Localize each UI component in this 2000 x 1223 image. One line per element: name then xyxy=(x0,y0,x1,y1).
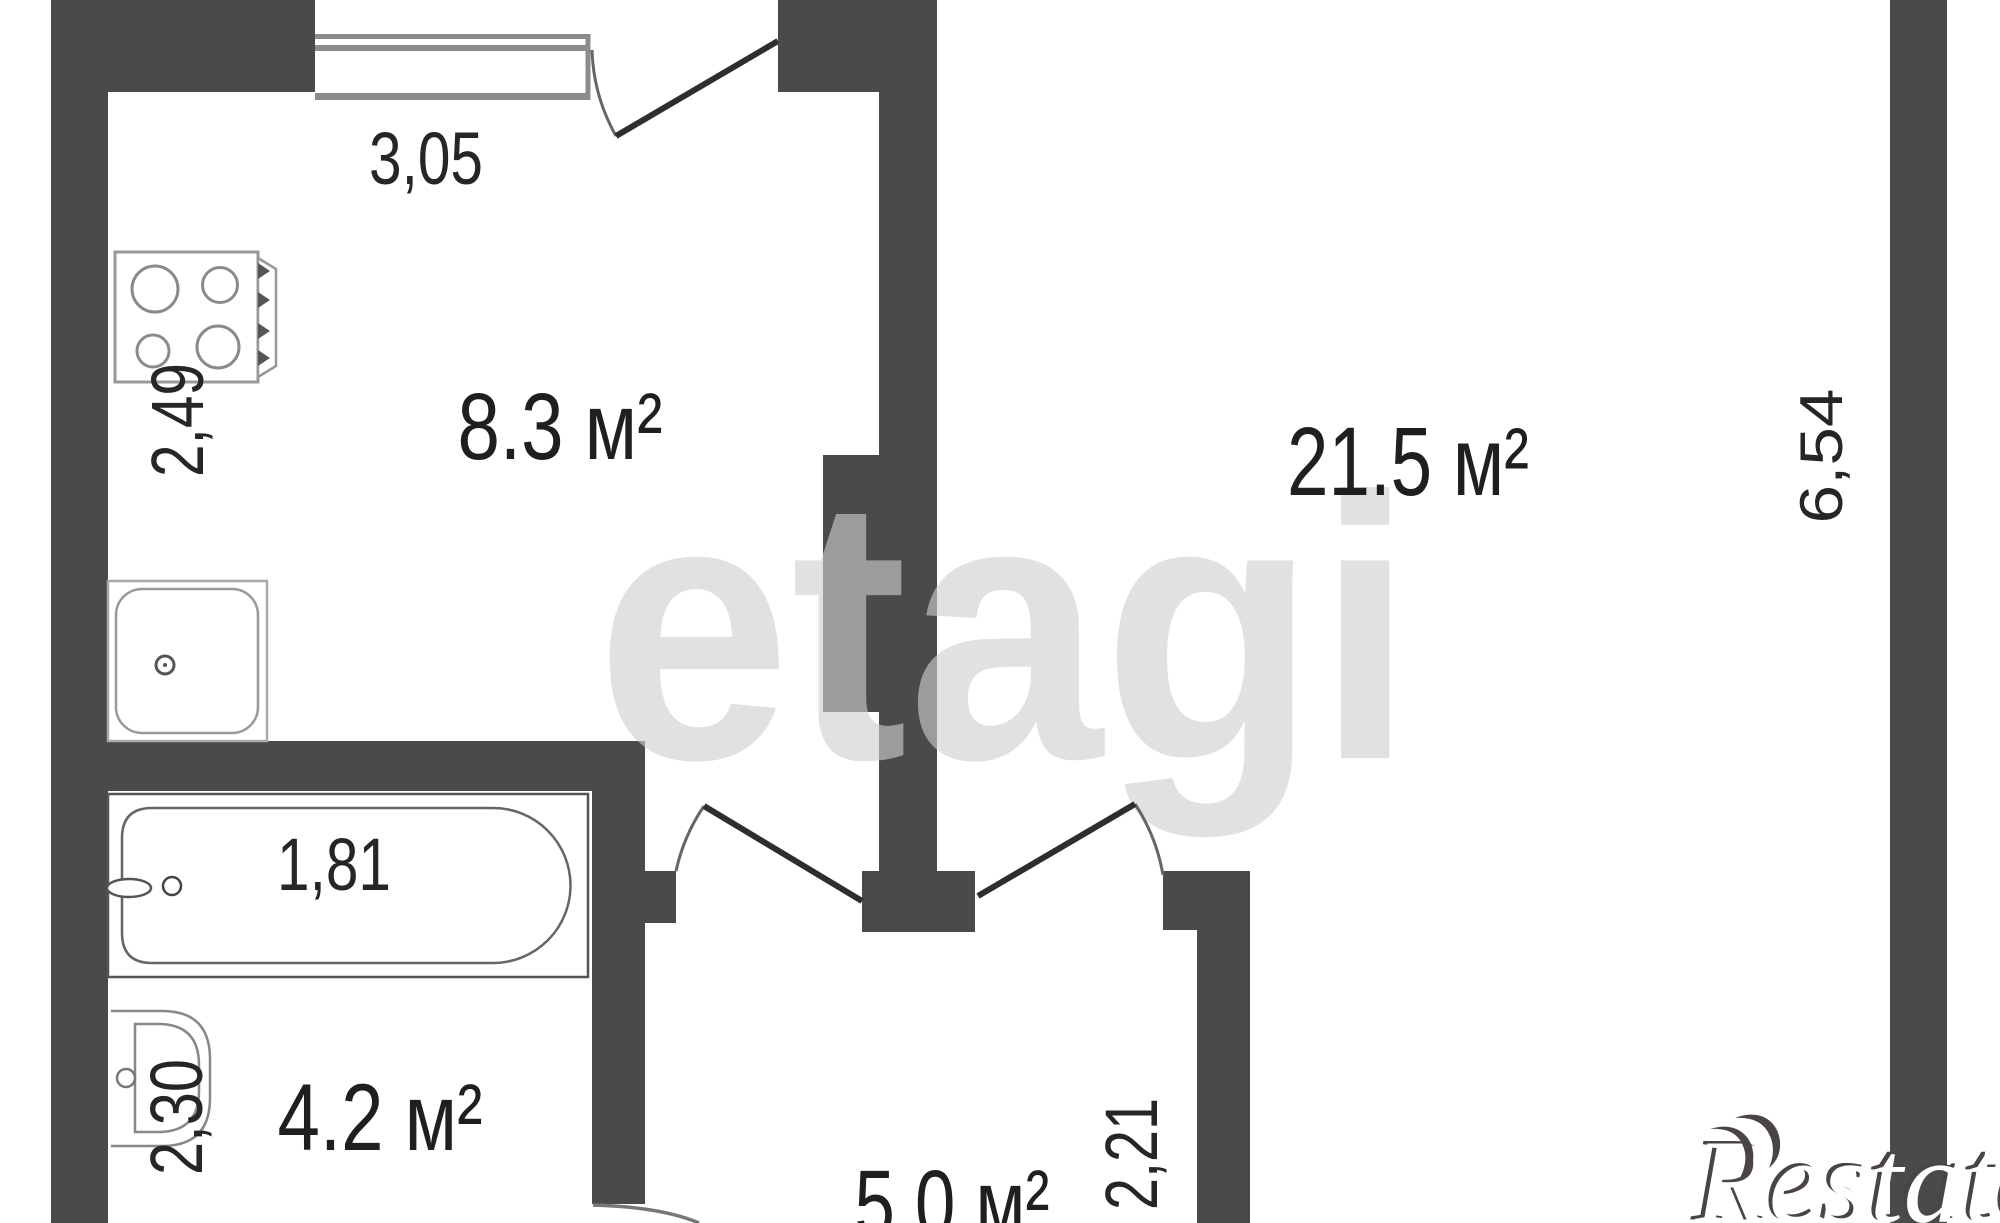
svg-text:4.2 м²: 4.2 м² xyxy=(278,1065,483,1171)
svg-text:2,49: 2,49 xyxy=(136,363,219,477)
svg-text:6,54: 6,54 xyxy=(1788,389,1855,524)
svg-text:2,21: 2,21 xyxy=(1090,1098,1173,1210)
svg-text:3,05: 3,05 xyxy=(369,117,483,200)
svg-text:5.0 м²: 5.0 м² xyxy=(855,1151,1050,1223)
svg-text:8.3 м²: 8.3 м² xyxy=(458,374,663,480)
svg-text:1,81: 1,81 xyxy=(277,823,391,906)
svg-text:21.5 м²: 21.5 м² xyxy=(1287,407,1529,516)
svg-text:2,30: 2,30 xyxy=(135,1059,218,1175)
